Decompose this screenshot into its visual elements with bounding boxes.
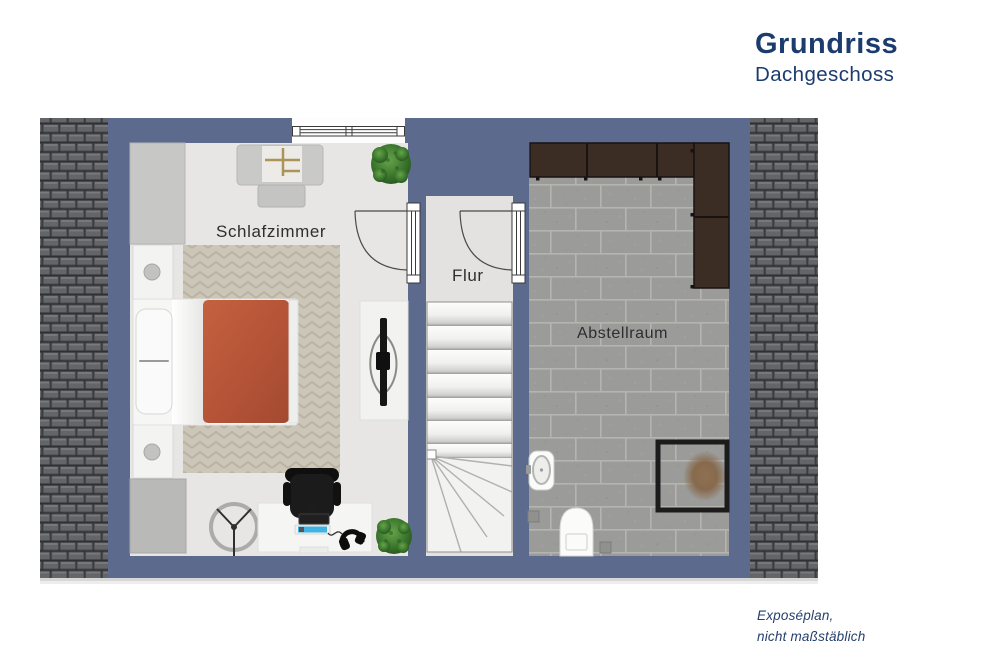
door-frame-storage-icon: [512, 203, 525, 283]
tv-sideboard: [360, 301, 408, 420]
fur-rug: [683, 451, 727, 501]
laptop-icon: [295, 525, 330, 534]
nightstand-bottom: [133, 425, 173, 478]
roof-left: [40, 118, 108, 578]
nightstand-top: [133, 245, 173, 299]
sink-icon: [526, 451, 554, 490]
disclaimer-line-1: Exposéplan,: [757, 606, 865, 627]
plan-shadow: [40, 578, 818, 584]
webcam-icon: [308, 506, 317, 513]
stair-newel: [427, 450, 436, 459]
plant-bottom-icon: [376, 518, 412, 554]
keyboard-icon: [299, 514, 329, 524]
storage-label: Abstellraum: [577, 325, 668, 343]
corner-closet: [130, 479, 186, 553]
window-icon: [292, 118, 405, 143]
floorplan-graphic: [0, 0, 1000, 667]
blanket: [203, 300, 289, 423]
bed: [133, 299, 298, 425]
hallway-label: Flur: [452, 266, 484, 286]
toilet-icon: [560, 508, 593, 556]
floorplan-page: Schlafzimmer Flur Abstellraum Grundriss …: [0, 0, 1000, 667]
plant-top-icon: [371, 144, 411, 184]
wardrobe: [130, 143, 185, 244]
door-frame-bedroom-icon: [407, 203, 420, 283]
stairs-with-winder: [427, 302, 512, 552]
page-title: Grundriss: [755, 28, 898, 61]
ottoman: [258, 185, 305, 207]
title-block: Grundriss Dachgeschoss: [755, 28, 898, 87]
page-subtitle: Dachgeschoss: [755, 63, 898, 87]
disclaimer-note: Exposéplan, nicht maßstäblich: [757, 606, 865, 648]
roof-right: [750, 118, 818, 578]
disclaimer-line-2: nicht maßstäblich: [757, 627, 865, 648]
bedroom-label: Schlafzimmer: [216, 222, 326, 242]
